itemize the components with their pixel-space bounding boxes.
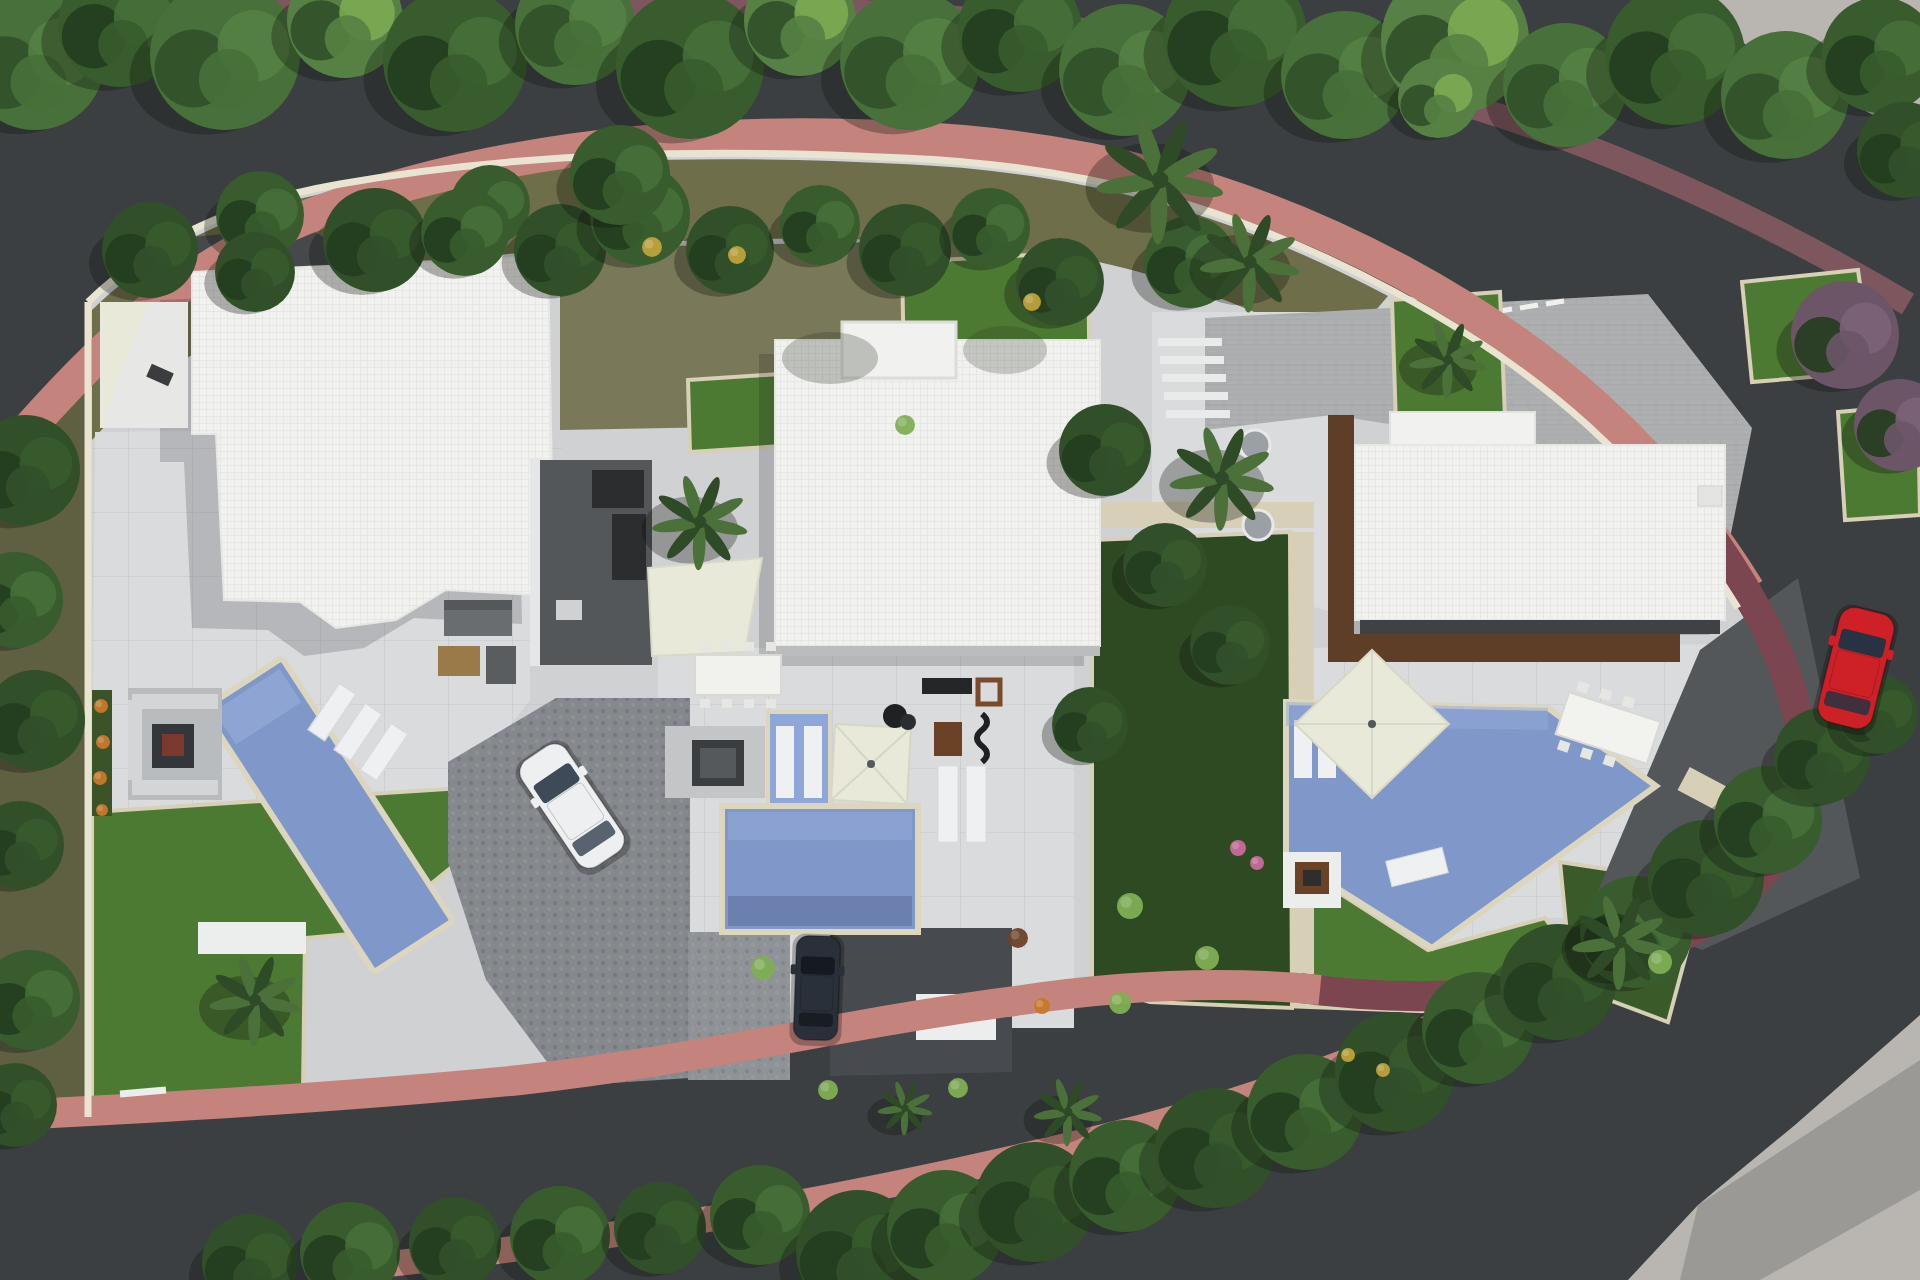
center-garden-bed bbox=[1092, 532, 1292, 1008]
outdoor-kitchen bbox=[592, 470, 644, 508]
shrub bbox=[1195, 946, 1219, 970]
shrub bbox=[1034, 998, 1050, 1014]
lounger bbox=[938, 766, 958, 842]
shrub bbox=[1376, 1063, 1390, 1077]
shrub bbox=[1008, 928, 1028, 948]
shrub bbox=[93, 771, 107, 785]
mirror bbox=[838, 966, 844, 976]
villa-2-pool bbox=[722, 806, 918, 932]
villa-2-spa bbox=[768, 712, 830, 810]
villa-1-garden-steps bbox=[198, 922, 306, 954]
modular-sofa bbox=[922, 678, 972, 694]
sofa bbox=[132, 780, 218, 795]
car-dark bbox=[788, 933, 846, 1047]
shrub bbox=[728, 246, 746, 264]
umbrella-pole bbox=[867, 760, 875, 768]
site-plan-render bbox=[0, 0, 1920, 1280]
tree-shadow-on-roof bbox=[782, 332, 878, 384]
lounger bbox=[966, 766, 986, 842]
spa-lounger bbox=[776, 726, 794, 798]
sofa bbox=[132, 694, 218, 709]
gate-mark-bottom-left bbox=[120, 1090, 166, 1094]
armchair bbox=[486, 646, 516, 684]
mirror bbox=[790, 964, 796, 974]
shrub bbox=[1109, 992, 1131, 1014]
site-plan-canvas bbox=[0, 0, 1920, 1280]
shrub bbox=[895, 415, 915, 435]
outdoor-kitchen bbox=[612, 514, 646, 580]
coffee-table bbox=[438, 646, 480, 676]
shrub bbox=[1341, 1048, 1355, 1062]
shrub bbox=[751, 956, 775, 980]
rear-window bbox=[799, 1012, 833, 1027]
roof-vent bbox=[1698, 486, 1722, 506]
shrub bbox=[96, 804, 108, 816]
villa-1-court-wall bbox=[530, 458, 540, 666]
villa-2-roof bbox=[775, 340, 1100, 646]
villa-3-roof bbox=[1355, 445, 1725, 620]
shrub bbox=[1117, 893, 1143, 919]
villa-3-deck-vertical bbox=[1328, 415, 1354, 660]
villa-2-eave-shadow bbox=[775, 646, 1100, 656]
shrub bbox=[1023, 293, 1041, 311]
villa-2-shade-sail bbox=[648, 558, 762, 656]
villa-2-lounge-set bbox=[665, 726, 765, 798]
villa-1-fire-lounge bbox=[128, 688, 222, 800]
shrub bbox=[96, 735, 110, 749]
dining-table bbox=[695, 655, 781, 695]
villa-3-glass-wall bbox=[1360, 620, 1720, 634]
shrub bbox=[1250, 856, 1264, 870]
shrub bbox=[818, 1080, 838, 1100]
shrub bbox=[1648, 950, 1672, 974]
court-table bbox=[556, 600, 582, 620]
tree-shadow-on-roof bbox=[963, 326, 1047, 374]
spa-lounger bbox=[804, 726, 822, 798]
fire-pit bbox=[162, 734, 184, 756]
sofa bbox=[128, 700, 142, 780]
villa-3-fire-lounge bbox=[1283, 852, 1341, 908]
shrub bbox=[642, 237, 662, 257]
brown-chair bbox=[934, 722, 962, 756]
shrub bbox=[948, 1078, 968, 1098]
shrub bbox=[1230, 840, 1246, 856]
windshield bbox=[800, 956, 835, 975]
shrub bbox=[94, 699, 108, 713]
